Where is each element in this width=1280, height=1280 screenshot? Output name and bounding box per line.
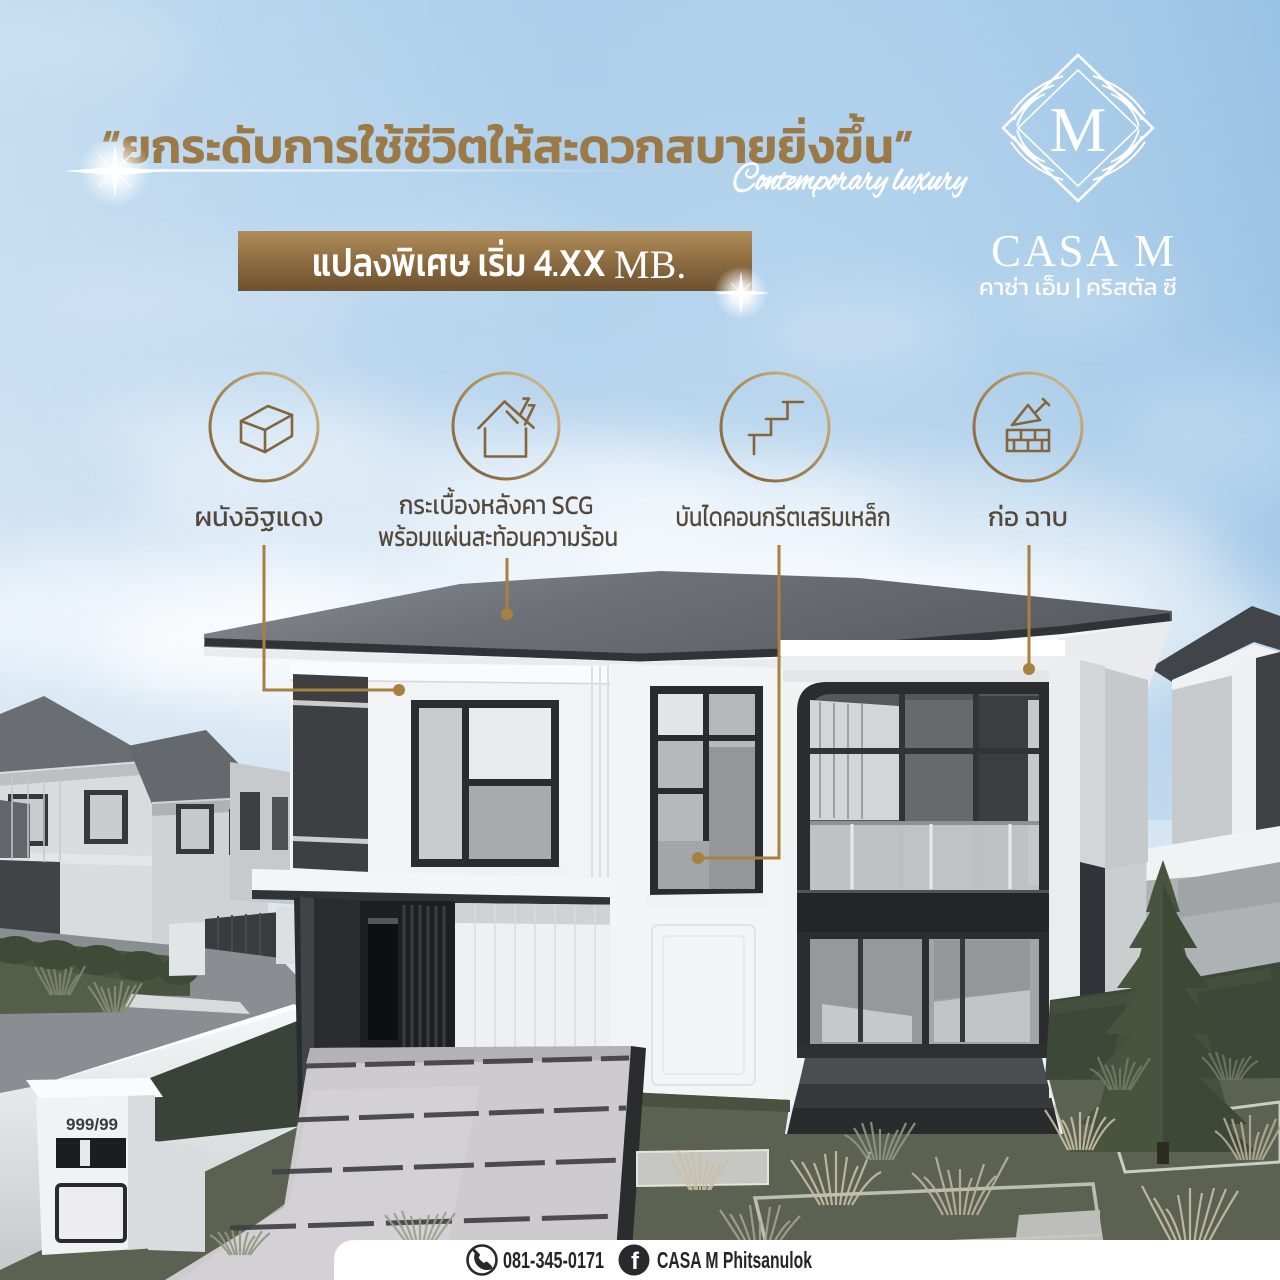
svg-text:CASA M Phitsanulok: CASA M Phitsanulok — [657, 1247, 812, 1273]
svg-text:f: f — [631, 1248, 640, 1275]
svg-text:081-345-0171: 081-345-0171 — [503, 1247, 604, 1273]
svg-text:CASA: CASA — [991, 226, 1121, 276]
svg-text:MB.: MB. — [614, 242, 686, 287]
svg-text:M: M — [1134, 226, 1174, 276]
svg-text:M: M — [1050, 94, 1107, 165]
svg-text:999/99: 999/99 — [66, 1115, 118, 1134]
